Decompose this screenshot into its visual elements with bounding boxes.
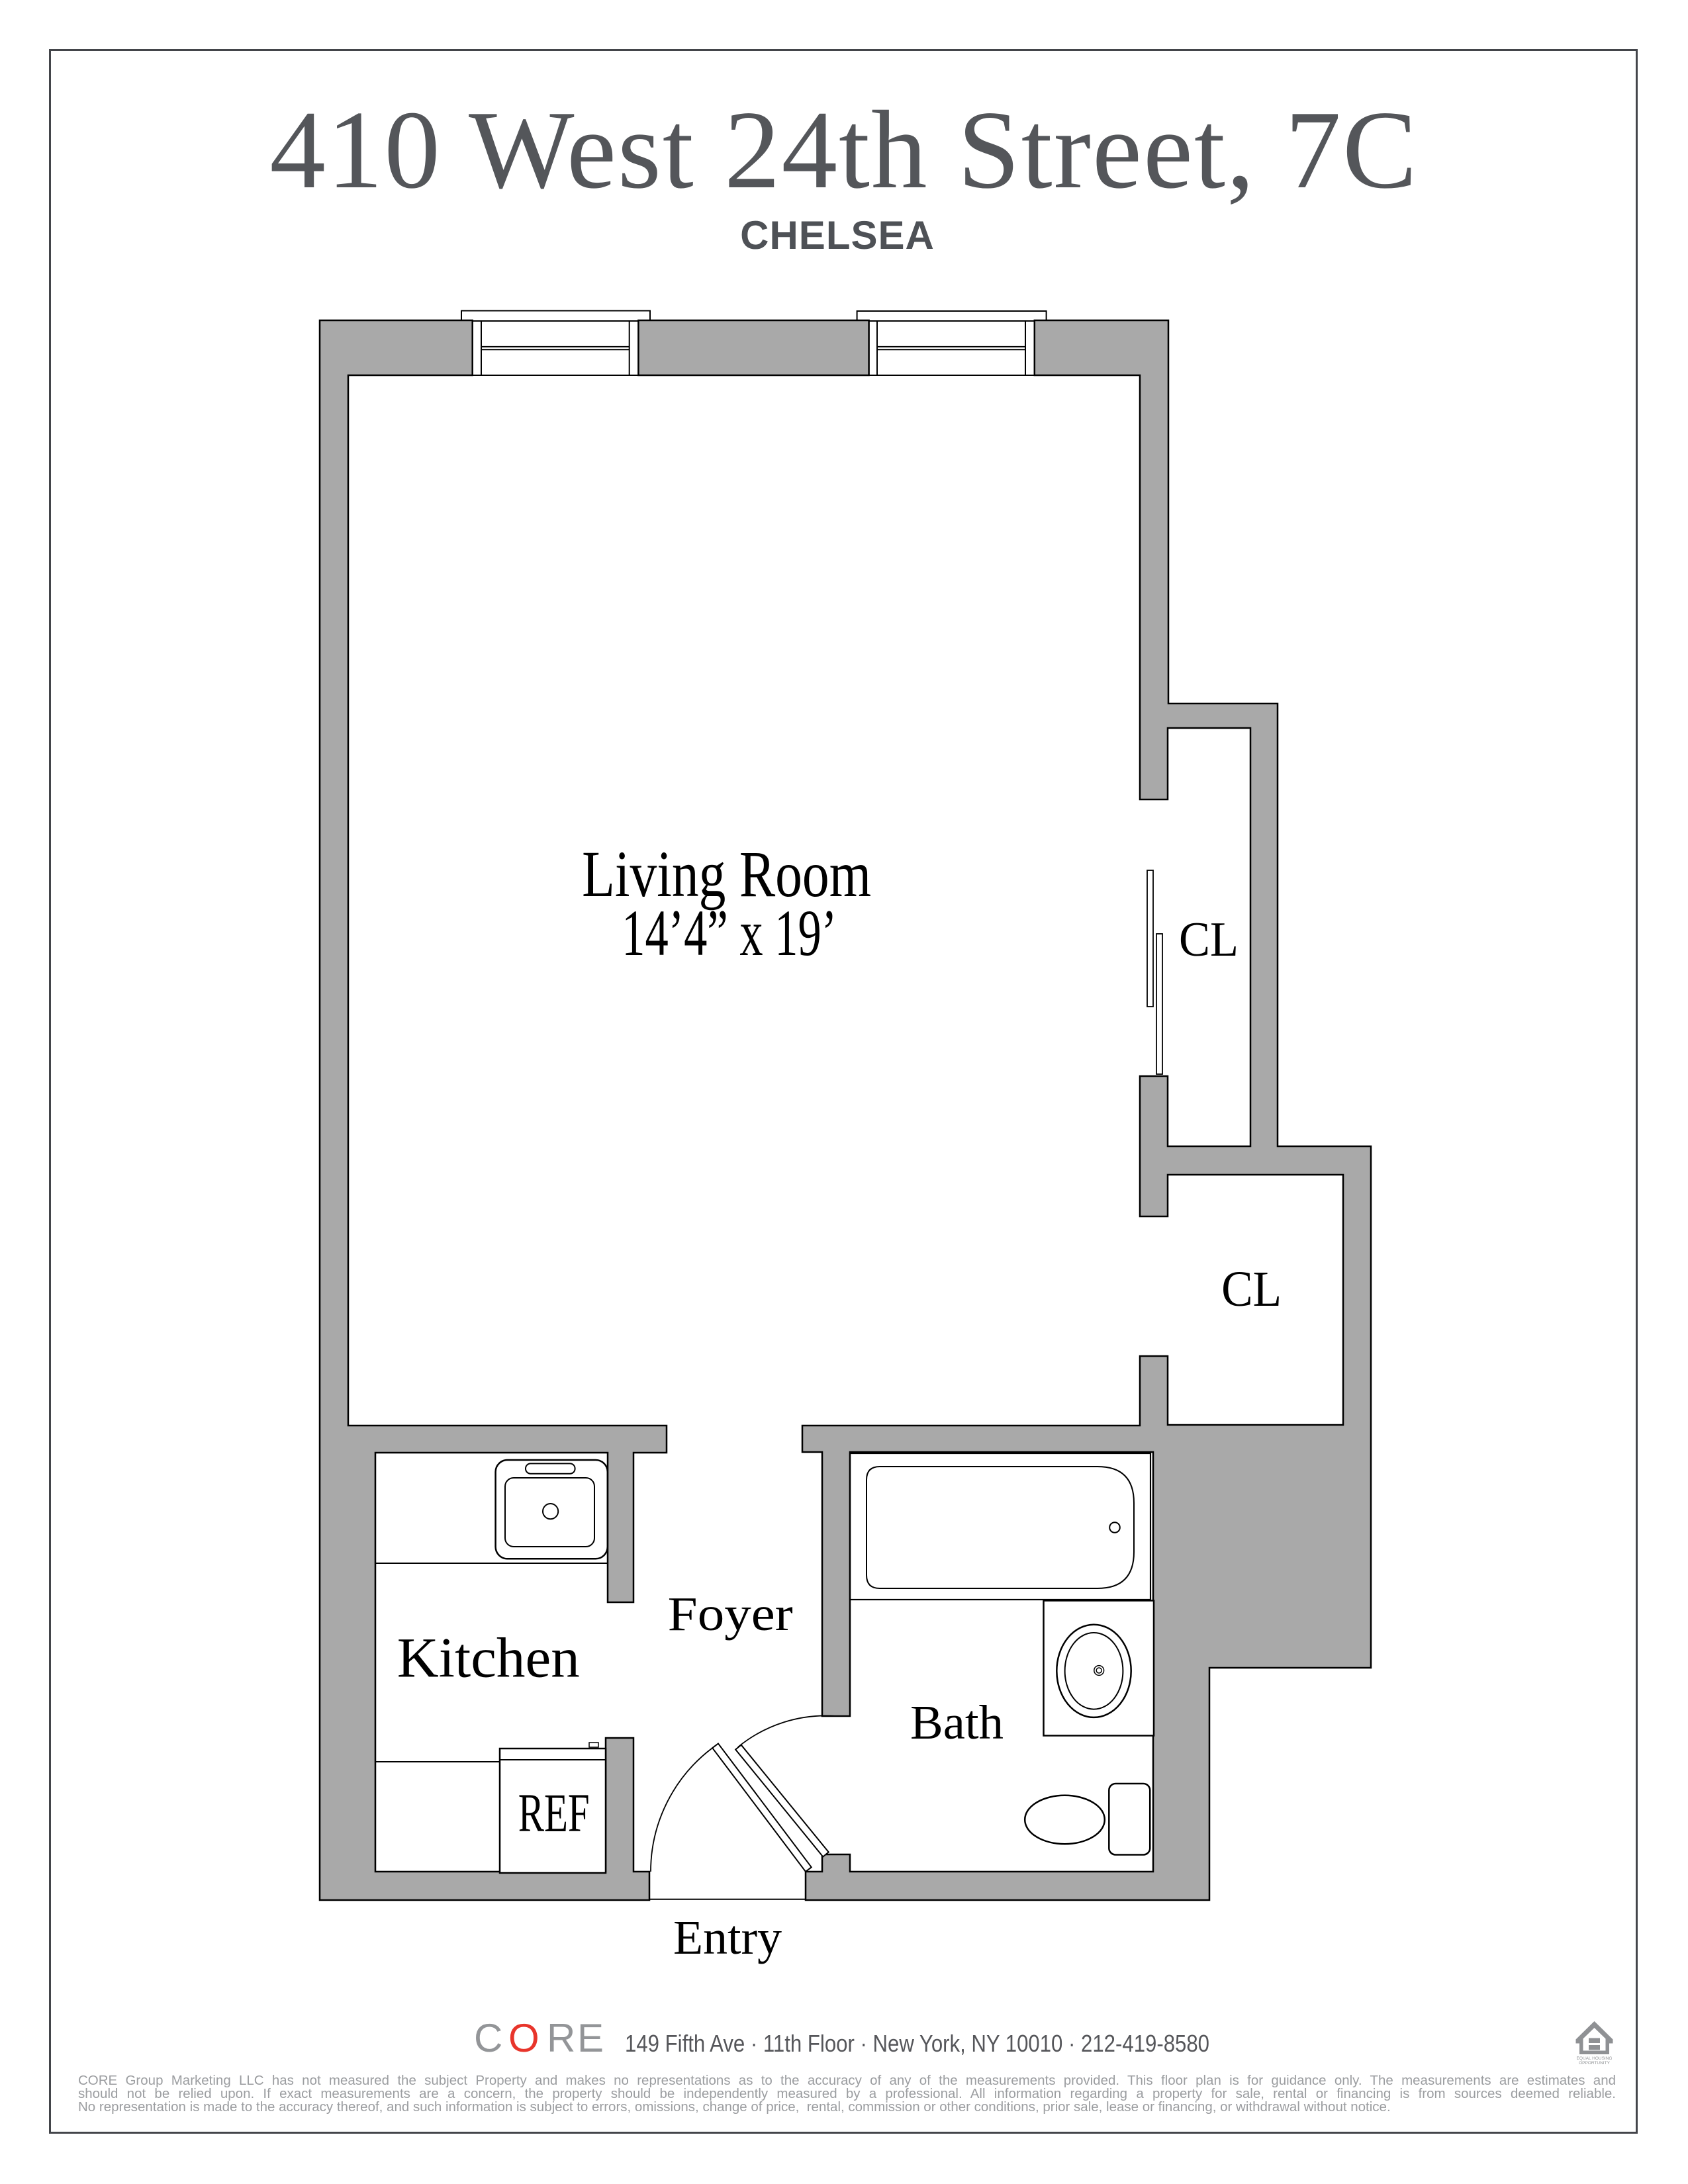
svg-text:14’4” x 19’: 14’4” x 19’ [622,896,837,970]
svg-text:Kitchen: Kitchen [397,1625,580,1689]
svg-text:CL: CL [1179,913,1239,967]
svg-text:REF: REF [518,1782,590,1843]
svg-text:C: C [474,2016,502,2060]
svg-text:EQUAL HOUSING: EQUAL HOUSING [1577,2056,1613,2061]
svg-text:R: R [547,2016,575,2060]
svg-text:O: O [508,2016,539,2060]
svg-text:CL: CL [1221,1261,1282,1317]
svg-text:E: E [577,2016,604,2060]
svg-text:Foyer: Foyer [668,1587,793,1641]
svg-text:Bath: Bath [910,1696,1004,1749]
svg-text:Entry: Entry [673,1911,782,1964]
svg-text:149 Fifth Ave · 11th Floor · N: 149 Fifth Ave · 11th Floor · New York, N… [625,2030,1209,2057]
svg-text:OPPORTUNITY: OPPORTUNITY [1579,2061,1610,2066]
